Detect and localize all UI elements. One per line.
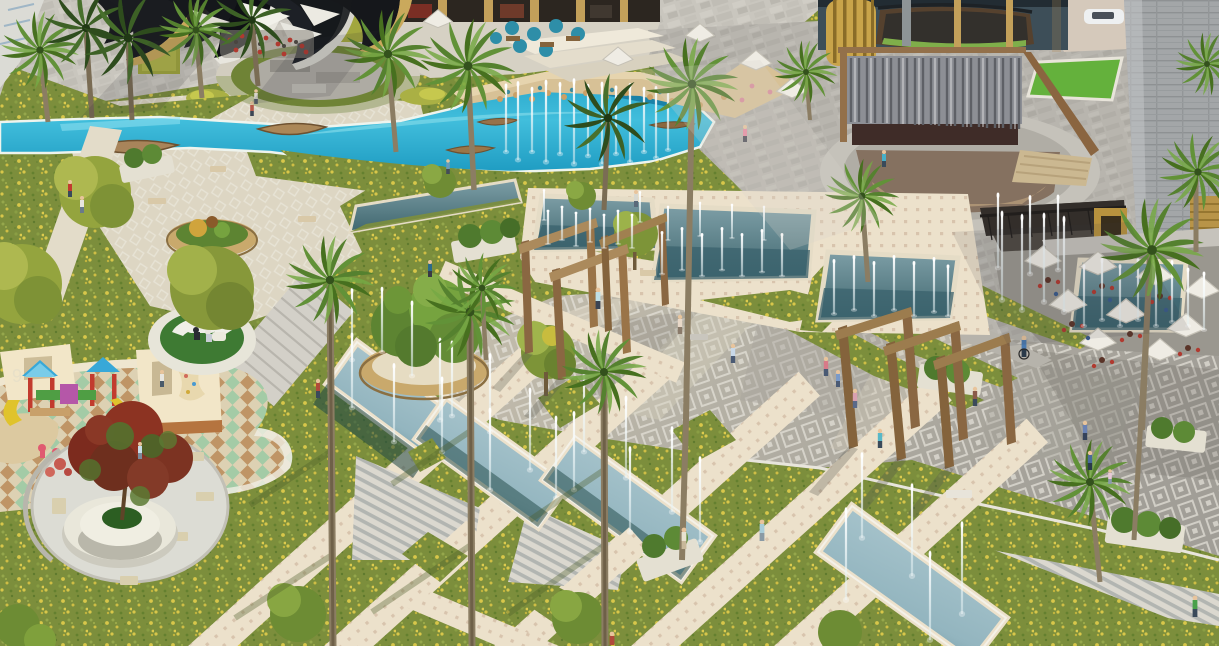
svg-text:9: 9 bbox=[12, 366, 22, 386]
